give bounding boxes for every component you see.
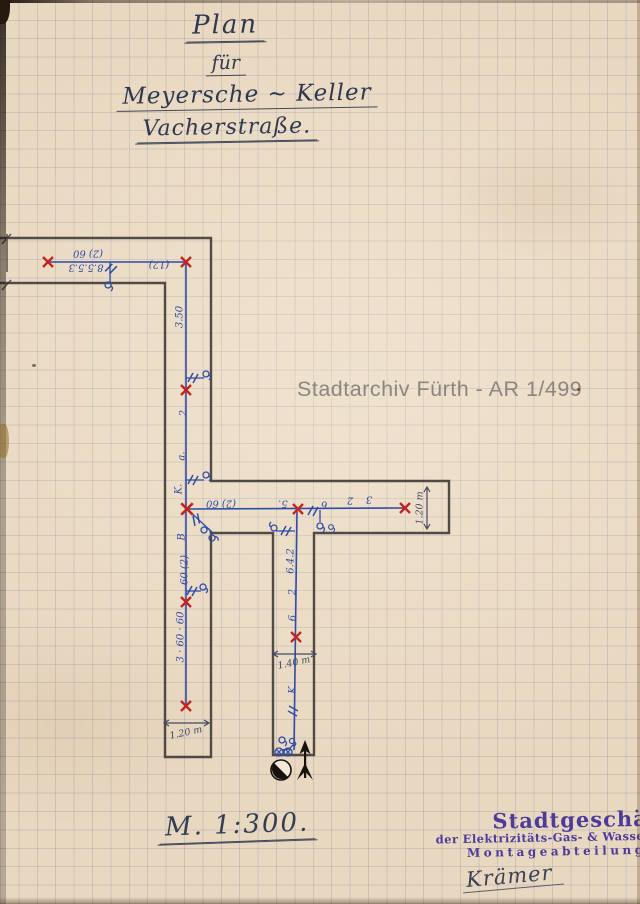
plan-annotation: 6 — [320, 499, 327, 510]
lamp-hook-icon — [317, 523, 325, 532]
paper-speck — [577, 388, 580, 391]
dimension-label: 1.40 m — [277, 654, 312, 672]
plan-annotation: 2 — [179, 410, 190, 417]
dimension-label: 1.20 m — [169, 724, 204, 742]
plan-annotation: (2) 60 — [205, 498, 236, 509]
plan-annotation: K — [288, 686, 299, 695]
paper-stain — [0, 424, 9, 458]
scanned-plan-page: Plan für Meyersche ~ Keller Vacherstraße… — [0, 0, 640, 904]
dimension-label: 1.20 m — [415, 491, 426, 524]
lamp-hook-icon — [329, 525, 335, 532]
lamp-hook-icon — [208, 533, 220, 545]
plan-annotation: 3 · 60 · 60 — [176, 611, 187, 663]
plan-annotation: a. — [177, 451, 188, 460]
stamp-division: Montageabteilung. — [467, 843, 640, 860]
corridor-walls — [0, 238, 449, 757]
plan-annotations: (2) 60 8.5.5.3 (12) 3.50 2 a. K. (2) 60 … — [69, 248, 373, 695]
plan-annotation: B — [177, 533, 188, 541]
plan-annotation: 3 — [366, 494, 372, 505]
fault-x-marks — [43, 257, 410, 711]
lamp-hook-icon — [279, 737, 287, 746]
paper-speck — [32, 364, 36, 367]
plan-annotation: (12) — [149, 259, 170, 270]
plan-annotation: 2 — [288, 589, 299, 596]
plan-annotation: 6.4.2 — [286, 548, 297, 573]
position-marker-icon — [271, 760, 291, 780]
entrance-arrow-icon — [297, 740, 313, 780]
plan-annotation: 6 — [288, 614, 299, 621]
plan-drawing: (2) 60 8.5.5.3 (12) 3.50 2 a. K. (2) 60 … — [0, 0, 640, 904]
plan-annotation: 2 — [347, 495, 354, 506]
plan-annotation: (2) 60 — [72, 248, 103, 259]
plan-annotation: 8.5.5.3 — [69, 262, 104, 273]
page-edge-bottom — [0, 897, 640, 904]
lamp-hook-icon — [270, 522, 278, 531]
scale-label: M. 1:300. — [156, 807, 317, 846]
plan-annotation: 5. — [278, 498, 288, 509]
lamp-hook-icon — [200, 584, 208, 593]
page-edge-top — [0, 0, 640, 3]
plan-annotation: 60 (2) — [180, 555, 191, 585]
lamp-hook-icon — [203, 472, 211, 481]
plan-annotation: 3.50 — [175, 305, 186, 328]
lamp-hook-icon — [203, 371, 211, 380]
plan-annotation: K. — [174, 484, 185, 496]
